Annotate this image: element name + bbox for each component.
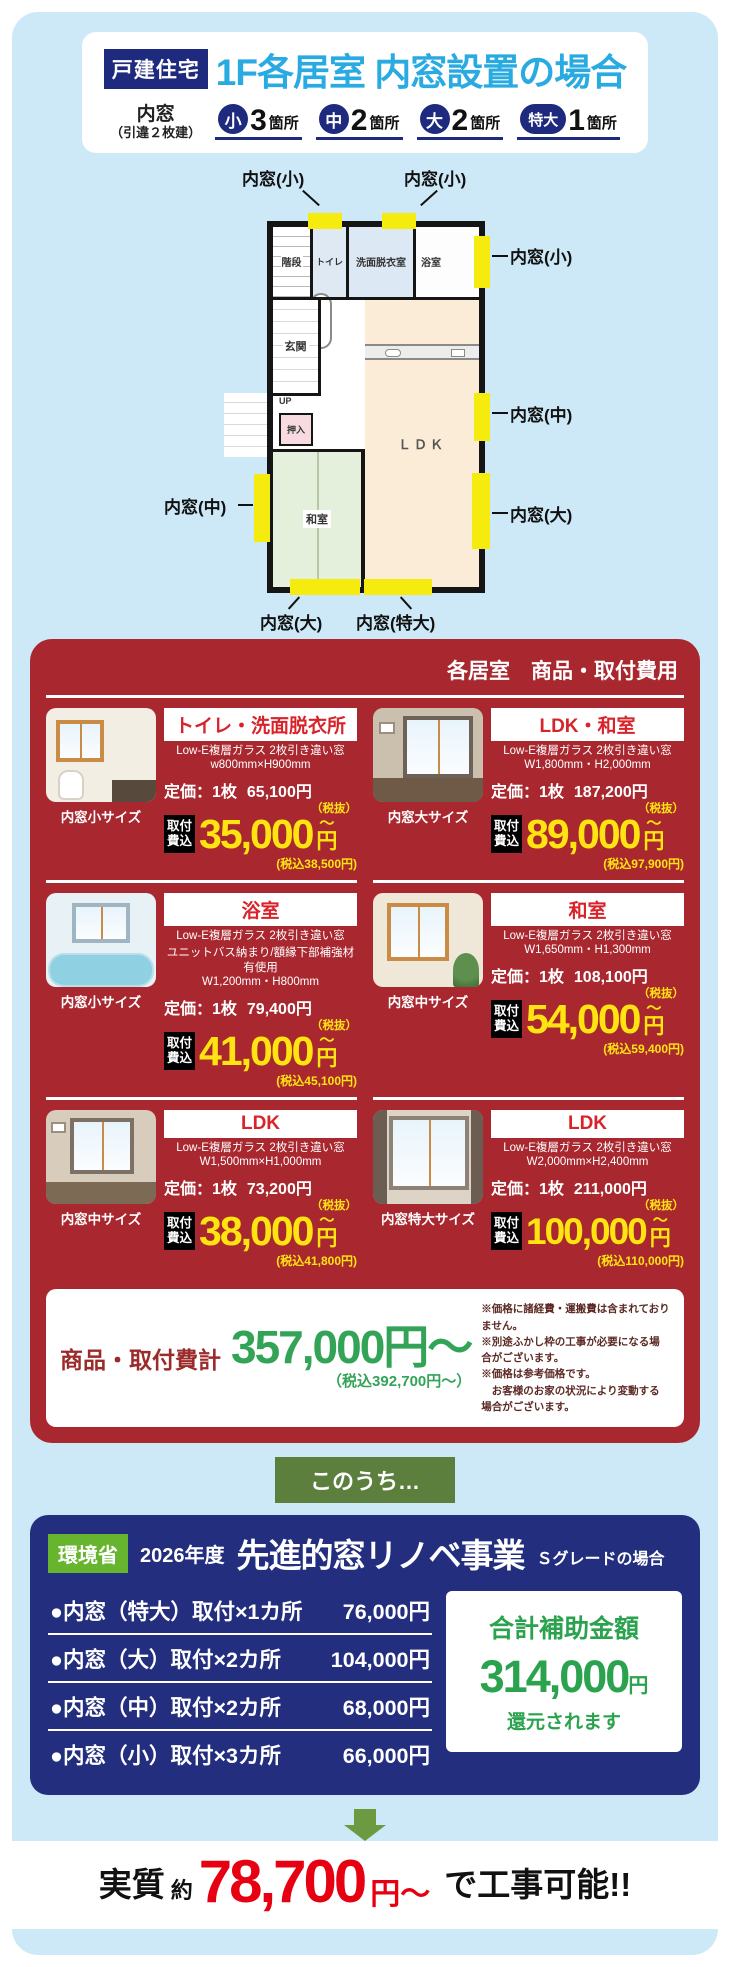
- window-type-line1: 内窓: [110, 104, 201, 126]
- count-unit: 箇所: [470, 112, 500, 135]
- price-notes: ※価格に諸経費・運搬費は含まれておりません。 ※別途ふかし枠の工事が必要になる場…: [481, 1301, 670, 1415]
- size-large-icon: 大: [420, 104, 450, 134]
- price-row: 取付費込 38,000 〜円: [164, 1212, 357, 1250]
- grant-yen: 円: [628, 1675, 648, 1697]
- subsidy-panel: 環境省 2026年度 先進的窓リノベ事業 Ｓグレードの場合 ●内窓（特大）取付×…: [30, 1515, 700, 1795]
- ldk-medium-window-photo: [46, 1110, 156, 1204]
- chip-line1: 取付: [494, 1004, 519, 1019]
- card-room-title: 和室: [491, 893, 684, 926]
- window-label-small-2: 内窓(小): [404, 165, 466, 190]
- window-photo-icon: [403, 716, 473, 778]
- room-label: 和室: [303, 510, 331, 528]
- size-spec: W1,500mm×H1,000mm: [164, 1155, 357, 1169]
- list-price-line: 定価：1枚187,200円: [491, 778, 684, 802]
- window-counts-row: 内窓 （引違２枚建） 小 3 箇所 中 2 箇所 大 2 箇所 特大 1 箇所: [96, 104, 634, 141]
- count-unit: 箇所: [269, 112, 299, 135]
- card-body: トイレ・洗面脱衣所 Low-E複層ガラス 2枚引き違い窓 w800mm×H900…: [164, 708, 357, 872]
- glass-spec: Low-E複層ガラス 2枚引き違い窓: [164, 1141, 357, 1155]
- total-price-wrap: 357,000円〜 （税込392,700円〜）: [231, 1326, 471, 1391]
- yen: 円: [650, 1228, 671, 1249]
- entrance-porch: [224, 393, 268, 457]
- photo-column: 内窓大サイズ: [373, 708, 483, 872]
- price-value: 38,000: [199, 1213, 312, 1250]
- chip-line2: 費込: [494, 1231, 519, 1246]
- final-price-band: 実質 約 78,700 円〜 で工事可能!!: [12, 1841, 718, 1929]
- window-photo-icon: [387, 903, 449, 961]
- note-line: ※別途ふかし枠の工事が必要になる場合がございます。: [481, 1334, 670, 1367]
- light-blue-panel: 戸建住宅 1F各居室 内窓設置の場合 内窓 （引違２枚建） 小 3 箇所 中 2…: [12, 12, 718, 1955]
- yen-suffix: 〜円: [316, 1033, 337, 1069]
- stove-icon: [451, 349, 465, 357]
- picture-frame-icon: [379, 722, 395, 734]
- size-medium-icon: 中: [319, 104, 349, 134]
- glass-spec: Low-E複層ガラス 2枚引き違い窓: [491, 929, 684, 943]
- card-body: LDK・和室 Low-E複層ガラス 2枚引き違い窓 W1,800mm・H2,00…: [491, 708, 684, 872]
- chip-line1: 取付: [167, 1216, 192, 1231]
- house-type-badge: 戸建住宅: [104, 49, 208, 89]
- ldk-large-window-photo: [373, 708, 483, 802]
- count-badge-xlarge: 特大 1 箇所: [517, 104, 620, 140]
- window-type-label: 内窓 （引違２枚建）: [110, 104, 201, 141]
- window-label-medium-right: 内窓(中): [510, 401, 572, 426]
- fiscal-year: 2026年度: [140, 1539, 225, 1568]
- install-included-chip: 取付費込: [164, 815, 195, 853]
- photo-column: 内窓中サイズ: [373, 893, 483, 1089]
- yen: 円: [316, 1048, 337, 1069]
- subsidy-body: ●内窓（特大）取付×1カ所76,000円 ●内窓（大）取付×2カ所104,000…: [48, 1587, 682, 1777]
- card-body: 浴室 Low-E複層ガラス 2枚引き違い窓 ユニットバス納まり/額縁下部補強材有…: [164, 893, 357, 1089]
- photo-caption: 内窓大サイズ: [373, 806, 483, 826]
- subsidy-program-title: 先進的窓リノベ事業: [237, 1529, 525, 1577]
- price-row: 取付費込 41,000 〜円: [164, 1032, 357, 1070]
- price-value: 100,000: [526, 1215, 646, 1248]
- list-price-line: 定価：1枚79,400円: [164, 995, 357, 1019]
- window-photo-icon: [56, 720, 104, 762]
- final-price-suffix: で工事可能!!: [444, 1858, 631, 1906]
- card-body: LDK Low-E複層ガラス 2枚引き違い窓 W2,000mm×H2,400mm…: [491, 1110, 684, 1269]
- glass-spec: Low-E複層ガラス 2枚引き違い窓: [164, 744, 357, 758]
- yen: 円: [316, 1228, 337, 1249]
- room-bathroom: 浴室: [416, 227, 479, 297]
- curtain-icon: [373, 1110, 387, 1204]
- ministry-badge: 環境省: [48, 1534, 128, 1573]
- window-marker-xlarge-bottom: [364, 579, 432, 595]
- photo-column: 内窓特大サイズ: [373, 1110, 483, 1269]
- room-label: 浴室: [421, 254, 441, 269]
- connector-line: [238, 504, 253, 506]
- size-spec: W2,000mm×H2,400mm: [491, 1155, 684, 1169]
- yen: 円: [643, 831, 664, 852]
- tilde: 〜: [319, 1213, 334, 1228]
- list-price-value: 65,100円: [247, 784, 312, 801]
- price-row: 取付費込 35,000 〜円: [164, 815, 357, 853]
- bathroom-photo: [46, 893, 156, 987]
- subsidy-item-price: 66,000円: [343, 1739, 430, 1770]
- size-spec: W1,650mm・H1,300mm: [491, 943, 684, 957]
- count-unit: 箇所: [587, 112, 617, 135]
- total-cost-box: 商品・取付費計 357,000円〜 （税込392,700円〜） ※価格に諸経費・…: [46, 1289, 684, 1427]
- plant-icon: [453, 953, 479, 987]
- subsidy-item-price: 68,000円: [343, 1691, 430, 1722]
- connector-line: [400, 596, 412, 609]
- tax-incl-price: (税込59,400円): [491, 1040, 684, 1057]
- curtain-icon: [471, 1110, 483, 1204]
- grant-suffix: 還元されます: [452, 1707, 676, 1734]
- price-value: 41,000: [199, 1033, 312, 1070]
- picture-frame-icon: [51, 1122, 66, 1133]
- connector-line: [288, 596, 300, 609]
- subsidy-item-list: ●内窓（特大）取付×1カ所76,000円 ●内窓（大）取付×2カ所104,000…: [48, 1587, 432, 1777]
- size-spec: w800mm×H900mm: [164, 758, 357, 772]
- floor-plan: 階段 トイレ 洗面脱衣室 浴室 玄関 UP 押入 和室 ＬＤＫ 内窓(小) 内窓…: [12, 161, 718, 635]
- pricing-card-washitsu: 内窓中サイズ 和室 Low-E複層ガラス 2枚引き違い窓 W1,650mm・H1…: [373, 880, 684, 1097]
- grant-amount: 314,000: [480, 1651, 629, 1702]
- tax-incl-price: (税込41,800円): [164, 1252, 357, 1269]
- photo-caption: 内窓中サイズ: [373, 991, 483, 1011]
- connector-line: [492, 255, 508, 257]
- window-label-large-right: 内窓(大): [510, 501, 572, 526]
- total-price: 357,000円〜: [231, 1326, 471, 1370]
- grant-total-box: 合計補助金額 314,000円 還元されます: [446, 1591, 682, 1752]
- chip-line1: 取付: [167, 819, 192, 834]
- photo-column: 内窓中サイズ: [46, 1110, 156, 1269]
- chip-line1: 取付: [494, 1216, 519, 1231]
- yen-suffix: 〜円: [316, 1213, 337, 1249]
- photo-caption: 内窓中サイズ: [46, 1208, 156, 1228]
- subsidy-item-price: 76,000円: [343, 1595, 430, 1626]
- list-price-value: 73,200円: [247, 1181, 312, 1198]
- card-body: LDK Low-E複層ガラス 2枚引き違い窓 W1,500mm×H1,000mm…: [164, 1110, 357, 1269]
- pricing-card-grid: 内窓小サイズ トイレ・洗面脱衣所 Low-E複層ガラス 2枚引き違い窓 w800…: [46, 695, 684, 1278]
- photo-column: 内窓小サイズ: [46, 708, 156, 872]
- count-large: 2: [452, 107, 469, 136]
- toilet-washroom-photo: [46, 708, 156, 802]
- count-badge-small: 小 3 箇所: [215, 104, 302, 140]
- glass-spec: Low-E複層ガラス 2枚引き違い窓: [491, 744, 684, 758]
- list-price-label: 定価：1枚: [164, 784, 237, 801]
- grade-label: Ｓグレードの場合: [537, 1537, 665, 1569]
- pricing-card-bathroom: 内窓小サイズ 浴室 Low-E複層ガラス 2枚引き違い窓 ユニットバス納まり/額…: [46, 880, 357, 1097]
- install-included-chip: 取付費込: [164, 1212, 195, 1250]
- bathtub-photo-icon: [50, 955, 152, 985]
- chip-line1: 取付: [167, 1036, 192, 1051]
- yen-suffix: 〜円: [643, 816, 664, 852]
- pricing-card-ldk-washitsu: 内窓大サイズ LDK・和室 Low-E複層ガラス 2枚引き違い窓 W1,800m…: [373, 698, 684, 880]
- card-room-title: トイレ・洗面脱衣所: [164, 708, 357, 741]
- count-badge-large: 大 2 箇所: [417, 104, 504, 140]
- photo-column: 内窓小サイズ: [46, 893, 156, 1089]
- size-xlarge-icon: 特大: [520, 104, 566, 134]
- wood-window-photo: [373, 893, 483, 987]
- final-price-yen: 円〜: [370, 1851, 430, 1913]
- list-price-value: 108,100円: [574, 969, 648, 986]
- window-label-small-3: 内窓(小): [510, 243, 572, 268]
- price-row: 取付費込 54,000 〜円: [491, 1000, 684, 1038]
- window-label-medium-left: 内窓(中): [164, 493, 226, 518]
- flyer-page: 戸建住宅 1F各居室 内窓設置の場合 内窓 （引違２枚建） 小 3 箇所 中 2…: [0, 0, 730, 1967]
- yen: 円: [316, 831, 337, 852]
- room-washroom: 洗面脱衣室: [349, 227, 416, 297]
- install-included-chip: 取付費込: [491, 815, 522, 853]
- chip-line1: 取付: [494, 819, 519, 834]
- toilet-icon: [60, 772, 82, 798]
- down-arrow-icon: [354, 1809, 376, 1825]
- list-price-label: 定価：1枚: [491, 1181, 564, 1198]
- list-price-label: 定価：1枚: [164, 1181, 237, 1198]
- subsidy-item: ●内窓（特大）取付×1カ所76,000円: [48, 1587, 432, 1635]
- window-label-small-1: 内窓(小): [242, 165, 304, 190]
- total-label: 商品・取付費計: [60, 1341, 221, 1375]
- grant-amount-row: 314,000円: [452, 1651, 676, 1703]
- connector-line: [302, 190, 320, 206]
- card-room-title: 浴室: [164, 893, 357, 926]
- window-marker-medium-right: [474, 393, 490, 441]
- connector-line: [492, 412, 508, 414]
- list-price-label: 定価：1枚: [491, 784, 564, 801]
- chip-line2: 費込: [494, 834, 519, 849]
- install-included-chip: 取付費込: [491, 1212, 522, 1250]
- install-included-chip: 取付費込: [164, 1032, 195, 1070]
- connector-line: [420, 190, 438, 206]
- subsidy-header: 環境省 2026年度 先進的窓リノベ事業 Ｓグレードの場合: [48, 1529, 682, 1577]
- size-spec: W1,200mm・H800mm: [164, 975, 357, 989]
- pricing-card-ldk-medium: 内窓中サイズ LDK Low-E複層ガラス 2枚引き違い窓 W1,500mm×H…: [46, 1097, 357, 1277]
- room-stairs: 階段: [273, 227, 313, 297]
- tax-incl-price: (税込110,000円): [491, 1252, 684, 1269]
- extra-spec: ユニットバス納まり/額縁下部補強材有使用: [164, 946, 357, 975]
- photo-caption: 内窓小サイズ: [46, 991, 156, 1011]
- floor-icon: [373, 778, 483, 802]
- card-room-title: LDK: [491, 1110, 684, 1138]
- page-title: 1F各居室 内窓設置の場合: [216, 42, 626, 96]
- yen-suffix: 〜円: [650, 1213, 671, 1249]
- subsidy-item: ●内窓（小）取付×3カ所66,000円: [48, 1731, 432, 1777]
- price-value: 54,000: [526, 1001, 639, 1038]
- pricing-card-ldk-xlarge: 内窓特大サイズ LDK Low-E複層ガラス 2枚引き違い窓 W2,000mm×…: [373, 1097, 684, 1277]
- tilde: 〜: [646, 816, 661, 831]
- glass-spec: Low-E複層ガラス 2枚引き違い窓: [164, 929, 357, 943]
- count-unit: 箇所: [369, 112, 399, 135]
- price-row: 取付費込 89,000 〜円: [491, 815, 684, 853]
- sink-icon: [385, 349, 401, 357]
- subsidy-item: ●内窓（中）取付×2カ所68,000円: [48, 1683, 432, 1731]
- window-marker-small-3: [474, 236, 490, 288]
- price-row: 取付費込 100,000 〜円: [491, 1212, 684, 1250]
- list-price-label: 定価：1枚: [164, 1001, 237, 1018]
- floor-plan-outline: 階段 トイレ 洗面脱衣室 浴室 玄関 UP 押入 和室 ＬＤＫ: [267, 221, 485, 593]
- note-line: ※価格は参考価格です。: [481, 1366, 670, 1382]
- room-japanese: 和室: [273, 449, 365, 587]
- list-price-value: 187,200円: [574, 784, 648, 801]
- room-label: 洗面脱衣室: [356, 254, 406, 269]
- room-entrance: 玄関: [273, 300, 321, 396]
- window-marker-small-1: [308, 213, 342, 229]
- pricing-card-toilet-washroom: 内窓小サイズ トイレ・洗面脱衣所 Low-E複層ガラス 2枚引き違い窓 w800…: [46, 698, 357, 880]
- install-included-chip: 取付費込: [491, 1000, 522, 1038]
- window-label-large-bottom: 内窓(大): [260, 609, 322, 634]
- size-spec: W1,800mm・H2,000mm: [491, 758, 684, 772]
- list-price-line: 定価：1枚108,100円: [491, 963, 684, 987]
- list-price-line: 定価：1枚73,200円: [164, 1175, 357, 1199]
- card-body: 和室 Low-E複層ガラス 2枚引き違い窓 W1,650mm・H1,300mm …: [491, 893, 684, 1089]
- subsidy-item-text: ●内窓（小）取付×3カ所: [50, 1739, 281, 1770]
- count-xlarge: 1: [568, 107, 585, 136]
- kitchen-counter: [365, 344, 479, 360]
- chip-line2: 費込: [167, 1051, 192, 1066]
- yen-suffix: 〜円: [316, 816, 337, 852]
- ldk-xlarge-window-photo: [373, 1110, 483, 1204]
- photo-caption: 内窓特大サイズ: [373, 1208, 483, 1228]
- of-these-badge: このうち…: [275, 1457, 455, 1503]
- room-label: 階段: [281, 254, 303, 269]
- window-photo-icon: [70, 1118, 134, 1174]
- count-badge-medium: 中 2 箇所: [316, 104, 403, 140]
- window-label-xlarge-bottom: 内窓(特大): [356, 609, 435, 634]
- room-label: 玄関: [283, 337, 309, 355]
- window-type-line2: （引違２枚建）: [110, 126, 201, 141]
- room-label: 押入: [287, 423, 305, 436]
- list-price-label: 定価：1枚: [491, 969, 564, 986]
- window-photo-icon: [72, 903, 130, 943]
- room-label: ＬＤＫ: [398, 434, 446, 453]
- count-small: 3: [250, 107, 267, 136]
- pricing-panel-title: 各居室 商品・取付費用: [46, 649, 684, 695]
- tilde: 〜: [646, 1001, 661, 1016]
- list-price-value: 211,000円: [574, 1181, 647, 1198]
- tax-incl-price: (税込38,500円): [164, 855, 357, 872]
- header-title-row: 戸建住宅 1F各居室 内窓設置の場合: [96, 42, 634, 96]
- price-value: 89,000: [526, 816, 639, 853]
- pricing-panel: 各居室 商品・取付費用 内窓小サイズ トイレ・洗面脱衣所 Low-E複層ガラス …: [30, 639, 700, 1443]
- subsidy-item-text: ●内窓（中）取付×2カ所: [50, 1691, 281, 1722]
- note-line: お客様のお家の状況により変動する場合がございます。: [481, 1383, 670, 1416]
- yen-suffix: 〜円: [643, 1001, 664, 1037]
- size-small-icon: 小: [218, 104, 248, 134]
- chip-line2: 費込: [167, 834, 192, 849]
- card-room-title: LDK: [164, 1110, 357, 1138]
- floor-icon: [46, 1182, 156, 1204]
- subsidy-item: ●内窓（大）取付×2カ所104,000円: [48, 1635, 432, 1683]
- counter-icon: [112, 780, 156, 802]
- stairs-up-label: UP: [279, 396, 292, 406]
- count-medium: 2: [351, 107, 368, 136]
- header-box: 戸建住宅 1F各居室 内窓設置の場合 内窓 （引違２枚建） 小 3 箇所 中 2…: [82, 32, 648, 153]
- list-price-value: 79,400円: [247, 1001, 312, 1018]
- list-price-line: 定価：1枚211,000円: [491, 1175, 684, 1199]
- room-label: トイレ: [316, 255, 343, 268]
- subsidy-item-price: 104,000円: [331, 1643, 430, 1674]
- chip-line2: 費込: [494, 1019, 519, 1034]
- yen: 円: [643, 1016, 664, 1037]
- final-price: 78,700: [199, 1855, 365, 1909]
- subsidy-item-text: ●内窓（特大）取付×1カ所: [50, 1595, 303, 1626]
- window-marker-large-bottom: [290, 579, 360, 595]
- chip-line2: 費込: [167, 1231, 192, 1246]
- net-cost-prefix: 実質: [99, 1858, 165, 1906]
- photo-caption: 内窓小サイズ: [46, 806, 156, 826]
- price-value: 35,000: [199, 816, 312, 853]
- room-toilet: トイレ: [313, 227, 349, 297]
- tilde: 〜: [319, 816, 334, 831]
- window-photo-icon: [389, 1116, 469, 1190]
- window-marker-large-right: [472, 473, 490, 549]
- approx-label: 約: [171, 1859, 193, 1905]
- room-closet: 押入: [279, 413, 313, 446]
- tax-incl-price: (税込45,100円): [164, 1072, 357, 1089]
- tilde: 〜: [653, 1213, 668, 1228]
- glass-spec: Low-E複層ガラス 2枚引き違い窓: [491, 1141, 684, 1155]
- note-line: ※価格に諸経費・運搬費は含まれておりません。: [481, 1301, 670, 1334]
- list-price-line: 定価：1枚65,100円: [164, 778, 357, 802]
- tilde: 〜: [319, 1033, 334, 1048]
- subsidy-item-text: ●内窓（大）取付×2カ所: [50, 1643, 281, 1674]
- card-room-title: LDK・和室: [491, 708, 684, 741]
- window-marker-medium-left: [254, 474, 270, 542]
- window-marker-small-2: [382, 213, 416, 229]
- tax-incl-price: (税込97,900円): [491, 855, 684, 872]
- connector-line: [492, 512, 508, 514]
